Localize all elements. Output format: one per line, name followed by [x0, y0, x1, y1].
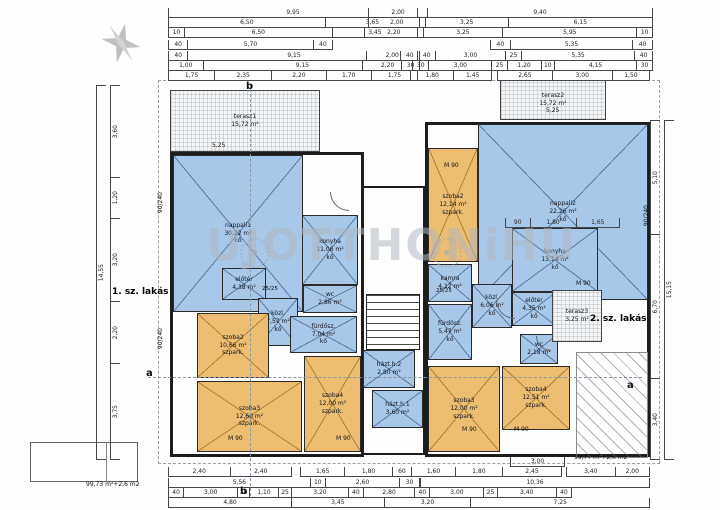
- dimension-row: 5,56102,6030: [168, 478, 420, 488]
- dimension-segment: 1,80: [455, 467, 502, 476]
- room-szoba3-r: szoba312,00 m²szpark.: [428, 366, 500, 452]
- dimension-segment: 5,10: [651, 120, 660, 234]
- dimension-segment: 40: [490, 40, 510, 49]
- dimension-row: 2,003,256,15: [368, 18, 653, 28]
- dimension-segment: 3,00: [183, 488, 237, 497]
- staircase: [366, 294, 420, 350]
- room-label: wc2,86 m²: [318, 291, 342, 307]
- window-size-label: 90/240: [158, 192, 164, 213]
- room-hazth1: házt.h.13,60 m²: [372, 390, 423, 428]
- room-label: szoba210,66 m²szpark.: [219, 334, 246, 357]
- dimension-segment: 2,20: [271, 71, 325, 80]
- room-label: előtér4,38 m²: [232, 276, 256, 292]
- dimension-segment: 1,80: [410, 71, 453, 80]
- section-marker-b-top: b: [246, 82, 253, 92]
- watermark-dot-icon: [240, 238, 270, 268]
- unit2-label: 2. sz. lakás: [590, 314, 647, 324]
- floorplan-canvas: UJOTTHONiHU 1. sz. lakás 2. sz. lakás te…: [0, 0, 720, 510]
- dimension-segment: 3,00: [429, 488, 483, 497]
- section-marker-b-bottom: b: [240, 487, 247, 497]
- dimension-segment: 1,80: [344, 467, 391, 476]
- window-size-label: 90/240: [158, 328, 164, 349]
- room-eloter1: előtér4,38 m²: [222, 268, 266, 300]
- room-terasz2: terasz215,72 m²: [500, 80, 606, 120]
- room-label: fürdősz.5,47 m²kő: [438, 320, 462, 343]
- watermark-dot-icon: [432, 238, 462, 268]
- room-label: házt.h.22,80 m²: [377, 361, 401, 377]
- door-size-label: M 90: [336, 436, 351, 442]
- compass-icon: [96, 18, 146, 68]
- door-size-label: M 90: [576, 281, 591, 287]
- dimension-segment: 14,55: [97, 85, 106, 460]
- dimension-row-vertical: 3,601,203,202,203,75: [110, 85, 120, 460]
- dimension-segment: 3,20: [384, 498, 471, 507]
- dimension-segment: 1,50: [612, 71, 650, 80]
- dimension-segment: 25: [278, 488, 291, 497]
- dimension-segment: 30: [399, 478, 420, 487]
- door-size-label: M 90: [462, 427, 477, 433]
- dimension-segment: 3,20: [291, 488, 348, 497]
- dimension-segment: 10: [541, 61, 555, 70]
- room-furdosz2: fürdősz.5,47 m²kő: [428, 304, 472, 360]
- dimension-row: 2,203,255,9510: [364, 28, 653, 38]
- dimension-segment: 40: [556, 488, 572, 497]
- dimension-segment: 2,00: [366, 51, 417, 60]
- dimension-segment: 60: [392, 467, 412, 476]
- room-label: terasz215,72 m²: [539, 92, 566, 108]
- dimension-segment: 30: [636, 61, 653, 70]
- dimension-row-vertical: 5,106,703,40: [650, 120, 660, 460]
- dimension-row: 1,801,45: [410, 71, 492, 81]
- dimension-segment: 3,00: [510, 457, 565, 466]
- dimension-segment: 3,60: [111, 85, 120, 177]
- room-label: szoba412,00 m²szpark.: [319, 392, 346, 415]
- dimension-segment: 1,70: [326, 71, 371, 80]
- dimension-segment: 40: [632, 40, 653, 49]
- dimension-segment: 10: [636, 28, 653, 37]
- dimension-segment: 6,15: [508, 18, 653, 27]
- dimension-segment: 10,36: [420, 478, 650, 487]
- dimension-segment: 25: [505, 51, 521, 60]
- dimension-segment: 2,20: [362, 61, 412, 70]
- dimension-segment: 2,65: [497, 71, 552, 80]
- dimension-segment: 4,80: [168, 498, 291, 507]
- room-hazth2: házt.h.22,80 m²: [363, 350, 415, 388]
- terrace-width-label: 5,25: [212, 143, 225, 149]
- outbuilding-outline: [30, 442, 138, 482]
- dimension-row: 10,36: [420, 478, 650, 488]
- dimension-row: 2,00403,00255,3540: [366, 51, 653, 61]
- room-wc1: wc2,86 m²: [303, 285, 357, 313]
- dimension-segment: 3,25: [423, 28, 503, 37]
- dimension-row-vertical: 15,15: [664, 120, 674, 460]
- pillar-size-label: 25/25: [262, 287, 278, 293]
- dimension-row: 403,00101,10253,20402,80403,00253,4040: [168, 488, 572, 498]
- dimension-row: 2,009,40: [368, 8, 653, 18]
- room-label: szoba212,14 m²szpark.: [439, 193, 466, 216]
- dimension-segment: 2,00: [615, 467, 650, 476]
- dimension-segment: 5,35: [521, 51, 634, 60]
- room-szoba4-l: szoba412,00 m²szpark.: [304, 356, 361, 452]
- terrace-width-label: 5,25: [546, 108, 559, 114]
- room-label: házt.h.13,60 m²: [385, 401, 409, 417]
- dimension-segment: 1,10: [249, 488, 278, 497]
- outbuilding-divider: [106, 443, 107, 481]
- dimension-segment: 1,45: [453, 71, 492, 80]
- room-label: terasz33,25 m²: [565, 308, 589, 324]
- dimension-segment: 40: [168, 488, 183, 497]
- dimension-segment: 40: [313, 40, 333, 49]
- dimension-row-vertical: 14,55: [96, 85, 106, 460]
- dimension-segment: 2,20: [364, 28, 423, 37]
- dimension-segment: 3,00: [552, 71, 612, 80]
- room-eloter2: előtér4,35 m²kő: [512, 292, 556, 326]
- dimension-segment: 2,40: [168, 467, 230, 476]
- dimension-segment: 1,65: [576, 218, 620, 227]
- dimension-row: 1,651,80601,601,802,45: [300, 467, 562, 477]
- room-label: közl.7,57 m²kő: [266, 310, 290, 333]
- dimension-segment: 1,00: [168, 61, 203, 70]
- dimension-segment: 9,40: [427, 8, 653, 17]
- dimension-segment: 2,80: [363, 488, 414, 497]
- section-line-b: [250, 84, 251, 496]
- dimension-segment: 1,20: [111, 177, 120, 217]
- dimension-segment: 25: [483, 488, 496, 497]
- dimension-row: 405,3540: [490, 40, 653, 50]
- dimension-segment: 6,50: [168, 18, 325, 27]
- dimension-segment: 2,20: [111, 301, 120, 363]
- dimension-segment: 3,00: [435, 51, 505, 60]
- dimension-segment: 6,50: [184, 28, 332, 37]
- area-total-label-right: 99,77 m²+2,6 m2: [574, 455, 627, 461]
- dimension-segment: 2,60: [325, 478, 399, 487]
- room-szoba4-r: szoba412,51 m²szpark.: [502, 366, 570, 430]
- room-label: előtér4,35 m²kő: [522, 297, 546, 320]
- dimension-segment: 3,40: [497, 488, 556, 497]
- pillar-size-label: 25/25: [436, 289, 452, 295]
- dimension-segment: 5,70: [187, 40, 312, 49]
- dimension-segment: 5,35: [510, 40, 632, 49]
- dimension-segment: 4,15: [554, 61, 636, 70]
- room-terasz1: terasz115,72 m²: [170, 90, 320, 152]
- dimension-segment: 40: [348, 488, 363, 497]
- dimension-segment: 1,20: [507, 61, 541, 70]
- dimension-segment: 3,40: [651, 378, 660, 460]
- room-furdosz1: fürdősz.7,04 m²kő: [290, 316, 357, 353]
- dimension-row: 2,402,40: [168, 467, 292, 477]
- room-label: szoba412,51 m²szpark.: [522, 386, 549, 409]
- dimension-row: 405,7040: [168, 40, 333, 50]
- dimension-segment: 5,95: [502, 28, 636, 37]
- dimension-segment: 1,60: [411, 467, 455, 476]
- dimension-segment: 40: [168, 40, 187, 49]
- dimension-segment: 3,25: [425, 18, 508, 27]
- dimension-segment: 5,56: [168, 478, 310, 487]
- dimension-segment: 1,75: [168, 71, 214, 80]
- dimension-row: 2,20303,00251,20104,1530: [362, 61, 653, 71]
- dimension-row: 1,752,352,201,701,75: [168, 71, 418, 81]
- driveway-hatch: [576, 352, 648, 458]
- section-marker-a-left: a: [146, 369, 153, 379]
- dimension-segment: 2,00: [368, 18, 425, 27]
- dimension-segment: 25: [491, 61, 506, 70]
- dimension-segment: 15,15: [665, 120, 674, 460]
- dimension-row: 3,00: [510, 457, 565, 467]
- dimension-segment: 2,35: [214, 71, 271, 80]
- section-marker-a-right: a: [627, 381, 634, 391]
- dimension-segment: 6,70: [651, 234, 660, 379]
- dimension-segment: 40: [414, 488, 429, 497]
- dimension-segment: 10: [310, 478, 326, 487]
- dimension-segment: 40: [417, 51, 435, 60]
- room-label: terasz115,72 m²: [231, 113, 258, 129]
- dimension-segment: 2,00: [368, 8, 427, 17]
- door-size-label: M 90: [514, 427, 529, 433]
- dimension-row: 2,653,001,50: [497, 71, 650, 81]
- dimension-row: 3,402,00: [566, 467, 650, 477]
- door-size-label: M 90: [444, 163, 459, 169]
- unit1-label: 1. sz. lakás: [112, 287, 169, 297]
- window-size-label: 90/240: [644, 205, 650, 226]
- room-label: fürdősz.7,04 m²kő: [312, 323, 336, 346]
- dimension-segment: 2,45: [502, 467, 562, 476]
- dimension-segment: 2,40: [230, 467, 293, 476]
- room-szoba2-l: szoba210,66 m²szpark.: [197, 313, 269, 378]
- dimension-segment: 3,40: [566, 467, 615, 476]
- dimension-segment: 40: [634, 51, 653, 60]
- dimension-segment: 40: [168, 51, 187, 60]
- dimension-segment: 3,00: [428, 61, 491, 70]
- dimension-row: 4,803,453,207,25: [168, 498, 650, 508]
- dimension-segment: 3,45: [291, 498, 384, 507]
- dimension-segment: 3,75: [111, 363, 120, 460]
- area-total-label-left: 99,73 m²+2,6 m2: [86, 482, 139, 488]
- dimension-segment: 1,65: [300, 467, 344, 476]
- dimension-segment: 10: [168, 28, 184, 37]
- door-size-label: M 90: [228, 436, 243, 442]
- dimension-segment: 30: [412, 61, 428, 70]
- dimension-segment: 7,25: [470, 498, 650, 507]
- room-label: szoba312,00 m²szpark.: [450, 397, 477, 420]
- section-line-a: [148, 377, 642, 378]
